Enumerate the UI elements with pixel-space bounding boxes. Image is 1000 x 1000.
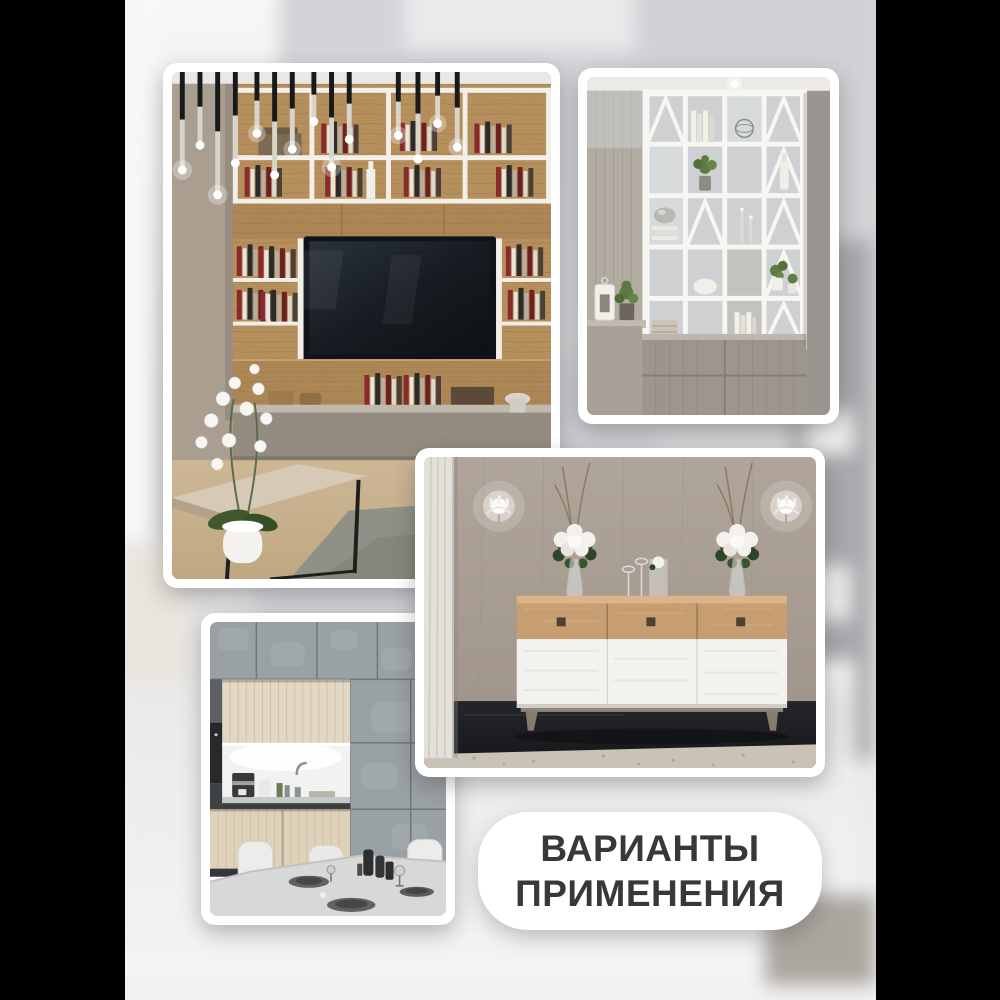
wall-sconce-left <box>473 481 525 532</box>
pillarbox-left <box>0 0 125 1000</box>
badge-line-2: ПРИМЕНЕНИЯ <box>515 871 785 916</box>
photo-white-shelving-divider <box>578 68 839 424</box>
photo-shelving-image <box>587 77 830 415</box>
product-collage-canvas: ВАРИАНТЫ ПРИМЕНЕНИЯ <box>0 0 1000 1000</box>
photo-sideboard-with-flowers <box>415 448 825 777</box>
pillarbox-right <box>876 0 1000 1000</box>
wall-sconce-right <box>760 481 812 532</box>
badge-line-1: ВАРИАНТЫ <box>540 826 759 871</box>
photo-sideboard-image <box>424 457 816 768</box>
photo-kitchen-image <box>210 622 446 916</box>
usage-variants-badge: ВАРИАНТЫ ПРИМЕНЕНИЯ <box>478 812 822 930</box>
